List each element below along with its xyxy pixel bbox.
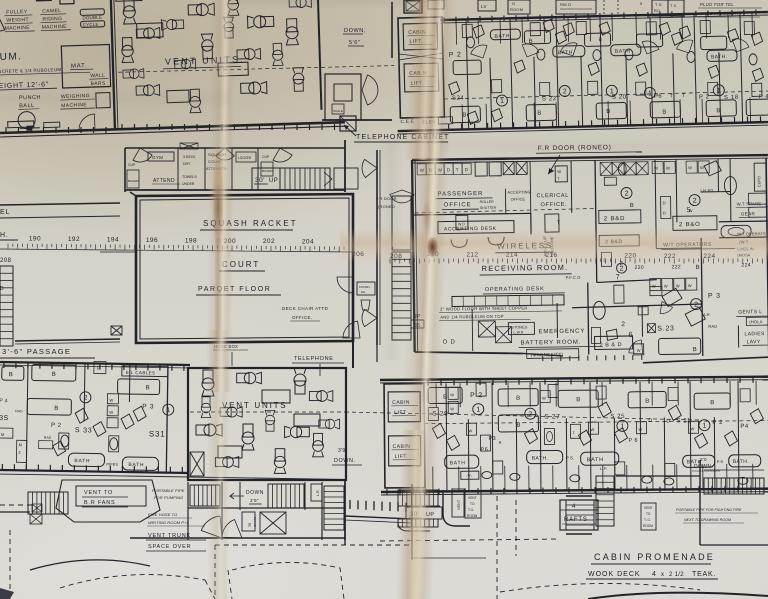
- svg-text:DOWN.: DOWN.: [694, 464, 713, 470]
- svg-text:W: W: [664, 283, 668, 288]
- svg-text:WOOK DECK: WOOK DECK: [588, 571, 641, 578]
- svg-text:W: W: [666, 165, 670, 170]
- svg-text:P 4: P 4: [759, 94, 768, 100]
- svg-text:BATTERY ROOM.: BATTERY ROOM.: [521, 340, 582, 347]
- svg-text:W: W: [637, 348, 641, 353]
- svg-text:R: R: [499, 440, 502, 445]
- svg-text:S31: S31: [149, 429, 166, 438]
- svg-text:LV: LV: [481, 4, 487, 9]
- svg-text:CABIN PROMENADE: CABIN PROMENADE: [594, 552, 715, 562]
- svg-text:PLUG FOR TEL: PLUG FOR TEL: [700, 2, 734, 7]
- svg-text:LH: LH: [704, 312, 710, 317]
- svg-text:PORTABLE PIPE FOR FIGHTING FIR: PORTABLE PIPE FOR FIGHTING FIRE: [676, 508, 742, 512]
- svg-text:SPACE OVER: SPACE OVER: [148, 544, 191, 550]
- svg-text:DRY: DRY: [183, 162, 191, 166]
- svg-text:P 6: P 6: [629, 438, 638, 444]
- svg-text:F: F: [19, 450, 22, 455]
- svg-text:P 2: P 2: [712, 420, 723, 426]
- svg-text:T: T: [557, 176, 560, 181]
- svg-text:2 B & D: 2 B & D: [600, 342, 623, 348]
- svg-text:W: W: [689, 208, 693, 213]
- svg-text:222: 222: [672, 264, 682, 270]
- svg-text:VENT TO: VENT TO: [84, 490, 113, 496]
- svg-text:D: D: [465, 167, 469, 172]
- svg-text:H.: H.: [0, 232, 9, 239]
- svg-text:P.S: P.S: [717, 459, 724, 464]
- svg-text:FIRE HOSE TO: FIRE HOSE TO: [148, 512, 177, 517]
- svg-text:B.R FANS: B.R FANS: [84, 500, 115, 506]
- svg-text:B: B: [52, 372, 56, 378]
- svg-text:E: E: [0, 36, 1, 42]
- svg-text:BOARD: BOARD: [262, 169, 274, 173]
- svg-text:ROOM: ROOM: [643, 524, 653, 528]
- svg-text:3'0: 3'0: [700, 457, 707, 462]
- svg-text:WEIGHT: WEIGHT: [6, 17, 29, 24]
- svg-text:MAT.: MAT.: [71, 63, 88, 70]
- svg-text:BATH: BATH: [128, 462, 144, 468]
- svg-text:DH: DH: [361, 290, 365, 294]
- svg-text:O D: O D: [443, 339, 456, 345]
- svg-text:2 B&D: 2 B&D: [604, 216, 625, 222]
- svg-text:S 25: S 25: [610, 414, 625, 420]
- svg-text:W: W: [109, 410, 113, 415]
- svg-text:220: 220: [635, 265, 645, 271]
- svg-text:W: W: [688, 283, 692, 288]
- svg-text:B: B: [662, 110, 666, 116]
- svg-text:W: W: [688, 165, 692, 170]
- svg-text:D: D: [0, 286, 4, 292]
- svg-text:3S: 3S: [0, 415, 9, 422]
- svg-text:W: W: [676, 283, 680, 288]
- svg-text:PIPES: PIPES: [106, 463, 118, 467]
- svg-text:NCRETE & 1/4 RUBOLEUM: NCRETE & 1/4 RUBOLEUM: [0, 67, 61, 74]
- svg-text:WRITING ROOM P+2: WRITING ROOM P+2: [148, 520, 189, 525]
- svg-text:UNDER: UNDER: [182, 182, 195, 186]
- svg-text:D: D: [648, 418, 652, 424]
- svg-text:T: T: [670, 93, 673, 99]
- svg-text:B: B: [146, 385, 150, 391]
- svg-text:5'6": 5'6": [349, 40, 361, 46]
- svg-text:2: 2: [563, 88, 567, 95]
- svg-text:D: D: [666, 418, 670, 424]
- svg-text:L.P.: L.P.: [600, 466, 607, 471]
- svg-text:B: B: [598, 37, 602, 43]
- svg-text:190: 190: [29, 236, 41, 243]
- svg-text:B: B: [54, 406, 58, 412]
- svg-text:LADIES: LADIES: [744, 331, 765, 337]
- svg-text:RECEIVING ROOM.: RECEIVING ROOM.: [481, 263, 568, 273]
- svg-text:LAVY: LAVY: [747, 339, 761, 345]
- svg-text:RAFTS: RAFTS: [564, 517, 588, 523]
- svg-text:M: M: [1, 432, 4, 437]
- svg-text:BATH: BATH: [587, 457, 604, 463]
- svg-text:OFFICE.: OFFICE.: [292, 315, 313, 320]
- svg-text:T G: T G: [655, 3, 662, 7]
- svg-text:4: 4: [572, 504, 576, 510]
- svg-text:W: W: [109, 398, 113, 403]
- svg-text:P 3: P 3: [708, 293, 721, 300]
- svg-text:W: W: [542, 396, 546, 401]
- svg-text:GEAR: GEAR: [741, 211, 756, 216]
- svg-text:P3: P3: [488, 436, 496, 442]
- svg-text:B: B: [645, 399, 649, 405]
- svg-text:EL: EL: [0, 209, 10, 216]
- svg-text:ATTEND: ATTEND: [153, 178, 175, 184]
- svg-text:STORES: STORES: [511, 325, 528, 329]
- svg-text:196: 196: [146, 237, 158, 244]
- svg-text:BATH: BATH: [494, 33, 510, 39]
- svg-text:W: W: [450, 392, 454, 397]
- svg-text:CUP: CUP: [128, 163, 136, 167]
- svg-text:RM D: RM D: [560, 2, 571, 7]
- svg-text:P4: P4: [740, 424, 749, 430]
- svg-text:2 1/2: 2 1/2: [669, 572, 684, 578]
- svg-text:W: W: [557, 169, 561, 174]
- svg-text:E.L CABLES: E.L CABLES: [126, 370, 156, 375]
- svg-text:TOWELS: TOWELS: [182, 175, 197, 179]
- svg-text:B: B: [693, 347, 697, 353]
- svg-text:S 22: S 22: [542, 96, 557, 102]
- svg-text:1: 1: [610, 88, 614, 95]
- svg-text:4: 4: [652, 571, 656, 578]
- svg-text:GENTS L: GENTS L: [738, 309, 762, 315]
- svg-text:S 27: S 27: [544, 413, 560, 420]
- svg-text:OPERATING DESK: OPERATING DESK: [485, 286, 545, 293]
- svg-text:B: B: [516, 423, 520, 429]
- svg-text:3'9": 3'9": [338, 448, 348, 454]
- svg-text:DOWN: DOWN: [246, 490, 264, 496]
- svg-text:2: 2: [620, 266, 624, 273]
- svg-text:BATH.: BATH.: [711, 54, 728, 60]
- svg-text:W: W: [652, 284, 656, 289]
- svg-text:5: 5: [640, 1, 643, 6]
- svg-text:E: E: [97, 366, 100, 371]
- svg-text:SHUTTER: SHUTTER: [480, 206, 497, 210]
- svg-text:RIDING: RIDING: [42, 16, 62, 23]
- svg-text:TO: TO: [470, 502, 475, 506]
- svg-text:RAD: RAD: [15, 409, 23, 413]
- svg-text:202: 202: [263, 238, 275, 245]
- svg-text:2: 2: [621, 321, 625, 328]
- svg-text:LOCKER: LOCKER: [238, 156, 252, 160]
- svg-text:TEAK.: TEAK.: [692, 571, 716, 578]
- svg-text:W: W: [468, 428, 472, 433]
- svg-text:B: B: [696, 265, 700, 271]
- svg-text:1: 1: [620, 423, 624, 430]
- svg-text:1: 1: [166, 407, 170, 414]
- svg-text:CUPD: CUPD: [757, 176, 761, 187]
- svg-text:DOWN.: DOWN.: [334, 458, 355, 464]
- svg-text:CHUTE: CHUTE: [253, 517, 257, 527]
- svg-text:RO: RO: [654, 9, 660, 13]
- svg-text:TELEPHONE: TELEPHONE: [294, 356, 334, 362]
- svg-text:CUP: CUP: [262, 155, 270, 159]
- svg-text:(HOLA: (HOLA: [749, 319, 762, 324]
- svg-text:2: 2: [625, 191, 629, 198]
- svg-text:OFFICE: OFFICE: [444, 202, 472, 208]
- svg-text:B: B: [443, 394, 447, 400]
- svg-text:B: B: [576, 397, 580, 403]
- svg-text:P 3: P 3: [142, 403, 154, 410]
- svg-text:CAMEL: CAMEL: [42, 8, 61, 15]
- svg-text:1: 1: [476, 407, 480, 414]
- svg-text:UP: UP: [269, 178, 278, 184]
- svg-text:NEXT TO DRAWING ROOM: NEXT TO DRAWING ROOM: [684, 518, 731, 522]
- svg-text:T: T: [456, 167, 459, 172]
- svg-text:L.R.: L.R.: [316, 489, 320, 496]
- svg-text:CLERICAL: CLERICAL: [537, 193, 570, 199]
- svg-text:OFFICE: OFFICE: [511, 197, 526, 201]
- svg-text:BATH.: BATH.: [733, 459, 749, 465]
- svg-text:B: B: [516, 396, 520, 402]
- svg-text:S.23: S.23: [657, 325, 674, 332]
- svg-text:D: D: [663, 200, 666, 205]
- svg-text:1: 1: [648, 90, 652, 97]
- svg-text:208: 208: [0, 258, 12, 264]
- svg-text:BATH.: BATH.: [532, 456, 549, 462]
- svg-text:3 DECK: 3 DECK: [183, 155, 196, 159]
- svg-text:GYM: GYM: [152, 155, 163, 160]
- svg-text:WALL: WALL: [90, 73, 105, 79]
- svg-text:CYCLE: CYCLE: [83, 22, 99, 28]
- svg-text:UM.: UM.: [0, 51, 23, 63]
- svg-text:EMERGENCY: EMERGENCY: [538, 329, 585, 336]
- svg-text:3'-6" PASSAGE: 3'-6" PASSAGE: [2, 347, 71, 356]
- svg-text:VENT: VENT: [457, 499, 461, 510]
- svg-text:192: 192: [68, 236, 80, 243]
- svg-text:FOR PUMPING: FOR PUMPING: [154, 495, 183, 500]
- svg-text:DECK CHAIR ATTD: DECK CHAIR ATTD: [282, 306, 329, 311]
- svg-text:BOARD: BOARD: [128, 179, 140, 183]
- svg-text:PORTABLE PIPE: PORTABLE PIPE: [152, 488, 185, 493]
- svg-text:RAD: RAD: [44, 436, 52, 440]
- svg-text:OFFICE.: OFFICE.: [541, 202, 568, 208]
- svg-text:P 2: P 2: [51, 423, 62, 429]
- svg-text:S 33: S 33: [75, 427, 93, 434]
- svg-text:VENT: VENT: [468, 496, 477, 500]
- svg-text:3'6: 3'6: [248, 523, 252, 527]
- svg-text:VENT UNITS: VENT UNITS: [222, 401, 287, 410]
- svg-text:T. G.: T. G.: [644, 518, 651, 522]
- svg-text:2" WOOD FLOOR WITH SHEET COPPE: 2" WOOD FLOOR WITH SHEET COPPER: [440, 305, 528, 311]
- svg-text:DOUBLE: DOUBLE: [82, 15, 102, 21]
- svg-text:RAD: RAD: [708, 324, 717, 329]
- svg-text:B: B: [710, 400, 714, 406]
- svg-text:W: W: [690, 426, 694, 431]
- svg-text:2: 2: [83, 395, 87, 402]
- svg-text:W: W: [590, 427, 594, 432]
- svg-text:B: B: [9, 372, 13, 378]
- svg-text:224: 224: [741, 262, 751, 268]
- svg-text:MADE IN LIBRARY: MADE IN LIBRARY: [700, 11, 740, 16]
- svg-text:B: B: [630, 203, 634, 209]
- svg-text:ROLLER: ROLLER: [480, 200, 495, 204]
- svg-text:2: 2: [693, 198, 697, 205]
- svg-text:KONSN: KONSN: [359, 285, 370, 289]
- svg-text:204: 204: [302, 239, 314, 246]
- svg-text:G: G: [512, 1, 515, 6]
- svg-text:ACCEPTING: ACCEPTING: [507, 190, 530, 194]
- svg-text:W: W: [638, 427, 642, 432]
- svg-text:VENT: VENT: [644, 506, 653, 510]
- svg-text:P.S.: P.S.: [566, 455, 575, 460]
- svg-text:P.F.C.O: P.F.C.O: [566, 275, 581, 280]
- svg-text:BATH: BATH: [450, 460, 466, 466]
- svg-text:P 4: P 4: [0, 398, 8, 404]
- svg-text:1: 1: [500, 98, 504, 105]
- svg-text:T C: T C: [670, 4, 677, 8]
- svg-text:7: 7: [616, 274, 621, 281]
- svg-text:B: B: [716, 108, 720, 114]
- svg-text:T.G.: T.G.: [468, 508, 474, 512]
- svg-text:D: D: [663, 210, 666, 215]
- svg-text:x: x: [661, 572, 664, 578]
- svg-text:DOWN,: DOWN,: [344, 28, 366, 34]
- svg-text:TO: TO: [646, 512, 651, 516]
- svg-text:T: T: [682, 93, 685, 99]
- svg-text:M: M: [19, 442, 22, 447]
- svg-text:B: B: [462, 112, 466, 118]
- svg-text:B: B: [537, 111, 541, 117]
- svg-text:S 18: S 18: [724, 95, 739, 101]
- svg-text:3'9": 3'9": [250, 498, 259, 503]
- svg-text:198: 198: [185, 237, 197, 244]
- svg-text:30': 30': [255, 177, 265, 184]
- svg-text:-V-: -V-: [466, 473, 473, 478]
- svg-text:P6: P6: [481, 447, 489, 453]
- svg-text:FULLEY: FULLEY: [6, 9, 28, 16]
- svg-text:ROOM: ROOM: [510, 7, 523, 12]
- svg-text:ROOM: ROOM: [467, 514, 478, 518]
- svg-text:S24: S24: [452, 95, 465, 101]
- svg-text:1: 1: [702, 423, 706, 430]
- svg-text:194: 194: [107, 236, 119, 243]
- svg-text:BATH: BATH: [74, 458, 90, 464]
- svg-text:L.W.R: L.W.R: [513, 330, 523, 334]
- svg-text:2: 2: [528, 411, 532, 418]
- svg-text:SCALE: SCALE: [333, 109, 343, 113]
- svg-text:T: T: [572, 430, 575, 435]
- svg-text:W: W: [450, 406, 454, 411]
